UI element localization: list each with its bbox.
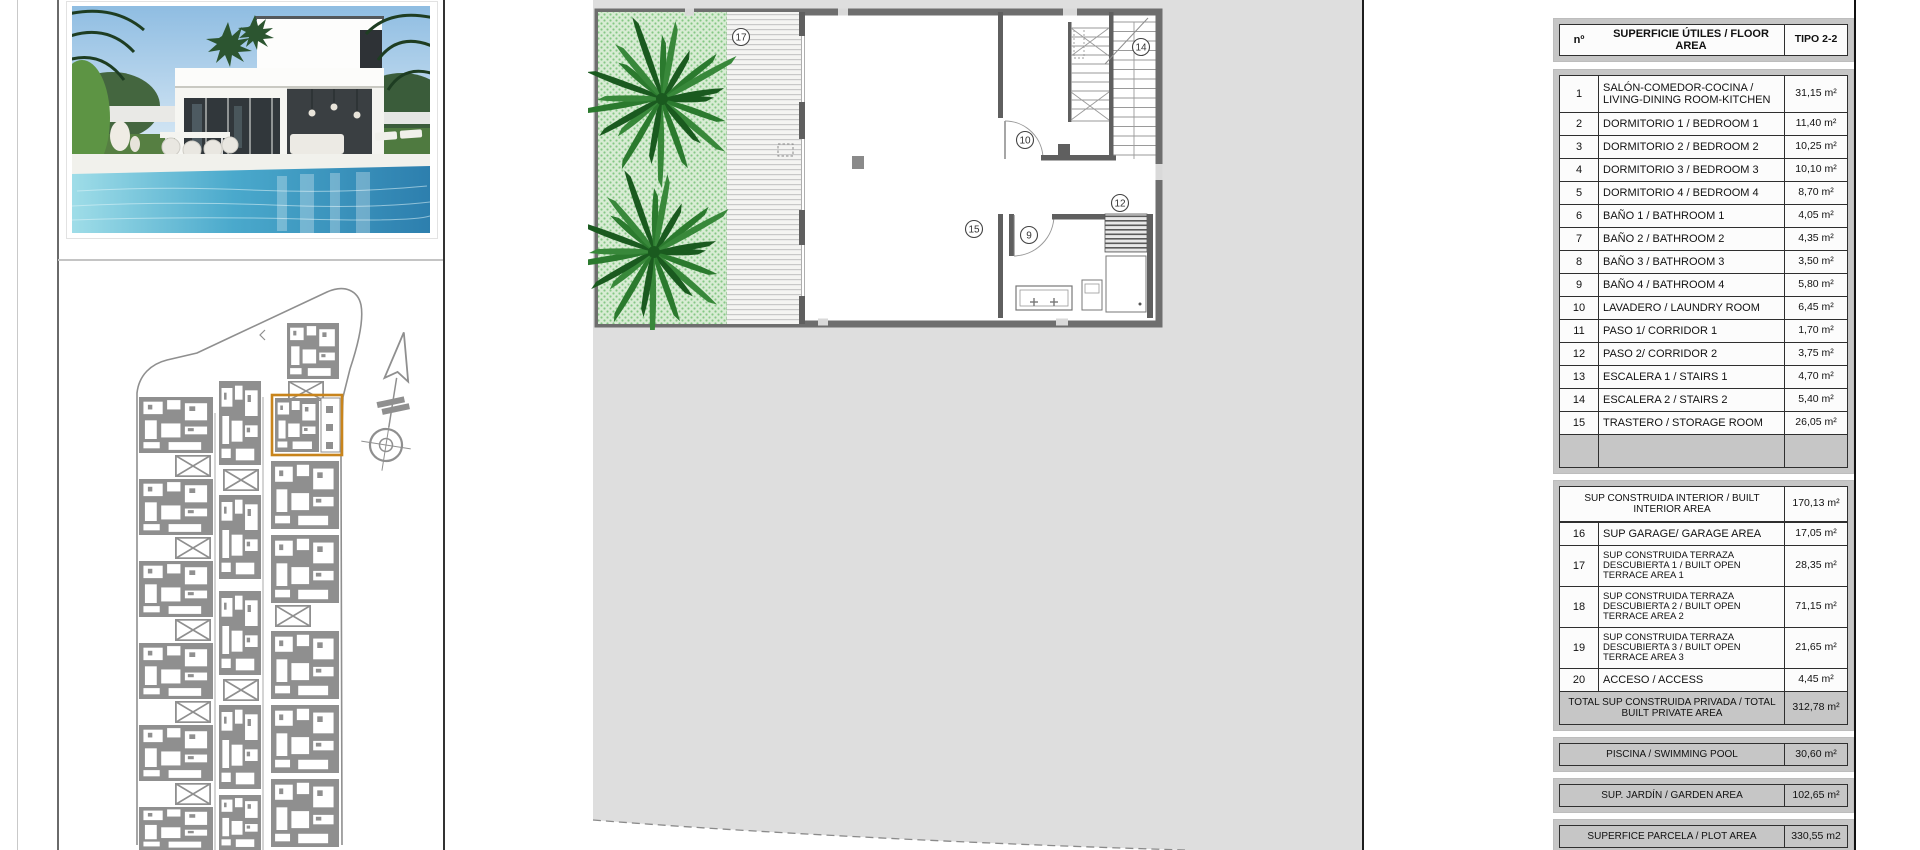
table-row: PISCINA / SWIMMING POOL30,60 m² xyxy=(1559,743,1848,766)
siteplan-units-col2 xyxy=(219,381,261,850)
table-cell-num: 10 xyxy=(1560,297,1599,319)
table-cell-val: 11,40 m² xyxy=(1784,113,1847,135)
table-row: 4DORMITORIO 3 / BEDROOM 310,10 m² xyxy=(1559,158,1848,182)
table-cell-val: 3,75 m² xyxy=(1784,343,1847,365)
table-cell-num: 7 xyxy=(1560,228,1599,250)
table-cell-num: 16 xyxy=(1560,523,1599,545)
table-cell-desc: DORMITORIO 2 / BEDROOM 2 xyxy=(1599,136,1784,158)
table-row: 6BAÑO 1 / BATHROOM 14,05 m² xyxy=(1559,204,1848,228)
table-cell-val: 21,65 m² xyxy=(1784,628,1847,668)
room-label-corridor2: 12 xyxy=(1112,195,1129,212)
site-plan xyxy=(95,285,445,850)
col-header-type: TIPO 2-2 xyxy=(1784,25,1847,55)
table-row: 12PASO 2/ CORRIDOR 23,75 m² xyxy=(1559,342,1848,366)
photo-divider-line xyxy=(58,259,443,261)
table-cell-desc: BAÑO 2 / BATHROOM 2 xyxy=(1599,228,1784,250)
table-row: 5DORMITORIO 4 / BEDROOM 48,70 m² xyxy=(1559,181,1848,205)
table-cell-desc: SUP CONSTRUIDA TERRAZA DESCUBIERTA 2 / B… xyxy=(1599,587,1784,627)
table-cell-val: 5,80 m² xyxy=(1784,274,1847,296)
table-cell-num: 12 xyxy=(1560,343,1599,365)
built-interior-row: SUP CONSTRUIDA INTERIOR / BUILT INTERIOR… xyxy=(1559,486,1848,522)
svg-text:12: 12 xyxy=(1114,199,1126,210)
table-cell-num: 20 xyxy=(1560,669,1599,691)
table-built-block: SUP CONSTRUIDA INTERIOR / BUILT INTERIOR… xyxy=(1553,480,1854,731)
room-label-storage: 15 xyxy=(966,221,983,238)
table-cell-desc: ACCESO / ACCESS xyxy=(1599,669,1784,691)
table-row: 1SALÓN-COMEDOR-COCINA / LIVING-DINING RO… xyxy=(1559,75,1848,113)
table-cell-desc: PASO 1/ CORRIDOR 1 xyxy=(1599,320,1784,342)
table-row: SUP. JARDÍN / GARDEN AREA102,65 m² xyxy=(1559,784,1848,807)
table-cell-val: 102,65 m² xyxy=(1784,785,1847,806)
north-arrow-icon xyxy=(357,328,428,474)
room-label-laundry: 10 xyxy=(1017,132,1034,149)
table-cell-desc: BAÑO 1 / BATHROOM 1 xyxy=(1599,205,1784,227)
table-cell-num: 5 xyxy=(1560,182,1599,204)
svg-text:14: 14 xyxy=(1135,43,1147,54)
svg-text:17: 17 xyxy=(735,33,747,44)
table-cell-desc: ESCALERA 2 / STAIRS 2 xyxy=(1599,389,1784,411)
summary-row-piscina: PISCINA / SWIMMING POOL30,60 m² xyxy=(1553,737,1854,772)
table-cell-val: 4,05 m² xyxy=(1784,205,1847,227)
table-cell-val: 4,45 m² xyxy=(1784,669,1847,691)
table-cell-val: 5,40 m² xyxy=(1784,389,1847,411)
photo-frame xyxy=(66,1,438,239)
room-label-bathroom4: 9 xyxy=(1021,227,1038,244)
table-row: 18SUP CONSTRUIDA TERRAZA DESCUBIERTA 2 /… xyxy=(1559,586,1848,628)
table-cell-num: 8 xyxy=(1560,251,1599,273)
table-cell-desc: SUPERFICE PARCELA / PLOT AREA xyxy=(1560,826,1784,847)
table-header-row: nº SUPERFICIE ÚTILES / FLOOR AREA TIPO 2… xyxy=(1559,24,1848,56)
table-cell-desc: DORMITORIO 4 / BEDROOM 4 xyxy=(1599,182,1784,204)
table-row: 15TRASTERO / STORAGE ROOM26,05 m² xyxy=(1559,411,1848,435)
table-row: 8BAÑO 3 / BATHROOM 33,50 m² xyxy=(1559,250,1848,274)
table-cell-desc: DORMITORIO 1 / BEDROOM 1 xyxy=(1599,113,1784,135)
table-cell-val: 3,50 m² xyxy=(1784,251,1847,273)
table-row: 19SUP CONSTRUIDA TERRAZA DESCUBIERTA 3 /… xyxy=(1559,627,1848,669)
table-cell-num: 11 xyxy=(1560,320,1599,342)
table-cell-num: 3 xyxy=(1560,136,1599,158)
table-row: 17SUP CONSTRUIDA TERRAZA DESCUBIERTA 1 /… xyxy=(1559,545,1848,587)
table-cell-desc: SUP GARAGE/ GARAGE AREA xyxy=(1599,523,1784,545)
table-cell-num: 9 xyxy=(1560,274,1599,296)
table-row: 2DORMITORIO 1 / BEDROOM 111,40 m² xyxy=(1559,112,1848,136)
table-rooms-block: 1SALÓN-COMEDOR-COCINA / LIVING-DINING RO… xyxy=(1553,69,1854,474)
table-cell-num: 13 xyxy=(1560,366,1599,388)
highlighted-unit xyxy=(272,395,342,455)
deck-area xyxy=(727,12,801,324)
table-cell-desc: SUP. JARDÍN / GARDEN AREA xyxy=(1560,785,1784,806)
table-cell-val: 4,70 m² xyxy=(1784,366,1847,388)
table-cell-desc: PISCINA / SWIMMING POOL xyxy=(1560,744,1784,765)
table-row: 9BAÑO 4 / BATHROOM 45,80 m² xyxy=(1559,273,1848,297)
col-header-label: SUPERFICIE ÚTILES / FLOOR AREA xyxy=(1598,25,1784,55)
svg-text:15: 15 xyxy=(968,225,980,236)
room-label-stairs2: 14 xyxy=(1133,39,1150,56)
table-cell-desc: BAÑO 4 / BATHROOM 4 xyxy=(1599,274,1784,296)
table-cell-desc: SUP CONSTRUIDA TERRAZA DESCUBIERTA 1 / B… xyxy=(1599,546,1784,586)
table-cell-val: 1,70 m² xyxy=(1784,320,1847,342)
table-cell-num: 1 xyxy=(1560,76,1599,112)
table-cell-val: 17,05 m² xyxy=(1784,523,1847,545)
center-right-divider xyxy=(1362,0,1364,850)
table-cell-val: 10,25 m² xyxy=(1784,136,1847,158)
table-row: 10LAVADERO / LAUNDRY ROOM6,45 m² xyxy=(1559,296,1848,320)
svg-text:9: 9 xyxy=(1026,231,1032,242)
table-row: 7BAÑO 2 / BATHROOM 24,35 m² xyxy=(1559,227,1848,251)
plan-sheet: 17 14 10 12 15 9 xyxy=(0,0,1920,850)
table-cell-desc: ESCALERA 1 / STAIRS 1 xyxy=(1599,366,1784,388)
table-cell-num: 6 xyxy=(1560,205,1599,227)
table-cell-val: 26,05 m² xyxy=(1784,412,1847,434)
table-cell-num: 18 xyxy=(1560,587,1599,627)
room-label-terrace1: 17 xyxy=(733,29,750,46)
table-cell-desc: SALÓN-COMEDOR-COCINA / LIVING-DINING ROO… xyxy=(1599,76,1784,112)
svg-text:10: 10 xyxy=(1019,136,1031,147)
table-row: 20ACCESO / ACCESS4,45 m² xyxy=(1559,668,1848,692)
table-header-block: nº SUPERFICIE ÚTILES / FLOOR AREA TIPO 2… xyxy=(1553,18,1854,62)
table-cell-num: 4 xyxy=(1560,159,1599,181)
table-cell-val: 8,70 m² xyxy=(1784,182,1847,204)
page-margin-line-left xyxy=(17,0,18,850)
table-cell-desc: TRASTERO / STORAGE ROOM xyxy=(1599,412,1784,434)
table-cell-val: 28,35 m² xyxy=(1784,546,1847,586)
table-row: 14ESCALERA 2 / STAIRS 25,40 m² xyxy=(1559,388,1848,412)
summary-row-parcela: SUPERFICE PARCELA / PLOT AREA330,55 m2 xyxy=(1553,819,1854,850)
table-cell-val: 71,15 m² xyxy=(1784,587,1847,627)
table-cell-desc: DORMITORIO 3 / BEDROOM 3 xyxy=(1599,159,1784,181)
table-cell-desc: LAVADERO / LAUNDRY ROOM xyxy=(1599,297,1784,319)
table-cell-val: 31,15 m² xyxy=(1784,76,1847,112)
table-cell-num: 2 xyxy=(1560,113,1599,135)
table-cell-num: 17 xyxy=(1560,546,1599,586)
table-empty-row xyxy=(1559,434,1848,468)
structural-column xyxy=(852,156,864,169)
table-cell-num: 14 xyxy=(1560,389,1599,411)
table-cell-val: 30,60 m² xyxy=(1784,744,1847,765)
left-panel-border-left xyxy=(57,0,59,850)
table-cell-desc: PASO 2/ CORRIDOR 2 xyxy=(1599,343,1784,365)
table-cell-num: 15 xyxy=(1560,412,1599,434)
table-cell-desc: SUP CONSTRUIDA TERRAZA DESCUBIERTA 3 / B… xyxy=(1599,628,1784,668)
villa-render-photo xyxy=(72,6,430,233)
col-header-number: nº xyxy=(1560,25,1598,55)
table-row: 11PASO 1/ CORRIDOR 11,70 m² xyxy=(1559,319,1848,343)
floor-plan: 17 14 10 12 15 9 xyxy=(588,4,1168,330)
summary-row-jardin: SUP. JARDÍN / GARDEN AREA102,65 m² xyxy=(1553,778,1854,813)
table-row: 13ESCALERA 1 / STAIRS 14,70 m² xyxy=(1559,365,1848,389)
siteplan-units-col1 xyxy=(139,397,213,850)
area-table: nº SUPERFICIE ÚTILES / FLOOR AREA TIPO 2… xyxy=(1553,18,1854,850)
table-row: SUPERFICE PARCELA / PLOT AREA330,55 m2 xyxy=(1559,825,1848,848)
table-row: 16SUP GARAGE/ GARAGE AREA17,05 m² xyxy=(1559,522,1848,546)
table-row: 3DORMITORIO 2 / BEDROOM 210,25 m² xyxy=(1559,135,1848,159)
table-cell-num: 19 xyxy=(1560,628,1599,668)
total-built-row: TOTAL SUP CONSTRUIDA PRIVADA / TOTAL BUI… xyxy=(1559,691,1848,725)
table-cell-val: 330,55 m2 xyxy=(1784,826,1847,847)
table-cell-desc: BAÑO 3 / BATHROOM 3 xyxy=(1599,251,1784,273)
page-border-right xyxy=(1854,0,1856,850)
table-cell-val: 10,10 m² xyxy=(1784,159,1847,181)
table-cell-val: 4,35 m² xyxy=(1784,228,1847,250)
table-cell-val: 6,45 m² xyxy=(1784,297,1847,319)
